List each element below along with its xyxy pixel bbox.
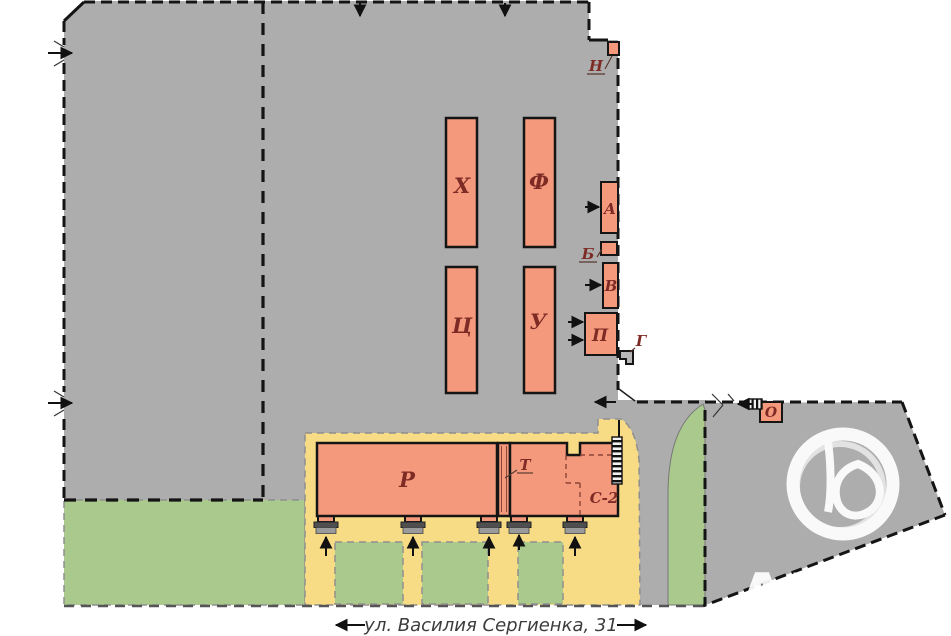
watermark-stem — [827, 436, 831, 512]
building-label-p: П — [591, 326, 609, 346]
building-label-u: У — [529, 309, 548, 334]
building-label-n: Н — [588, 57, 604, 75]
lawn-patch — [335, 542, 403, 604]
watermark-text: АН — [738, 560, 842, 633]
street-caption: ул. Василия Сергиенка, 31 — [336, 615, 646, 636]
site-boundary-corner-diagonal — [619, 389, 635, 401]
building-label-o: О — [765, 405, 778, 421]
street-lawn-patches — [335, 542, 563, 604]
lawn-patch — [422, 542, 488, 604]
building-t-passage — [498, 443, 510, 516]
building-label-v: В — [604, 277, 618, 295]
building-b — [601, 242, 617, 255]
lawn-bottom-left — [64, 500, 305, 605]
building-n — [608, 42, 619, 55]
building-label-b: Б — [581, 245, 595, 263]
building-label-g: Г — [635, 332, 648, 350]
site-plan-canvas: Х Ф Ц У А В П Р С-2 О Н Б Г Т АН ул. Вас… — [0, 0, 951, 636]
building-label-s2: С-2 — [590, 489, 619, 507]
site-plan: Х Ф Ц У А В П Р С-2 О Н Б Г Т АН ул. Вас… — [0, 0, 951, 636]
building-label-f: Ф — [529, 169, 549, 194]
structure-g — [620, 351, 633, 364]
lawn-patch — [518, 542, 563, 604]
building-label-kh: Х — [452, 173, 471, 198]
street-label: ул. Василия Сергиенка, 31 — [363, 615, 618, 636]
building-label-a: А — [603, 200, 616, 218]
stairs-hatch-vertical — [612, 437, 622, 484]
building-label-ts: Ц — [451, 313, 473, 338]
building-label-r: Р — [398, 467, 416, 492]
building-label-t: Т — [519, 456, 532, 474]
